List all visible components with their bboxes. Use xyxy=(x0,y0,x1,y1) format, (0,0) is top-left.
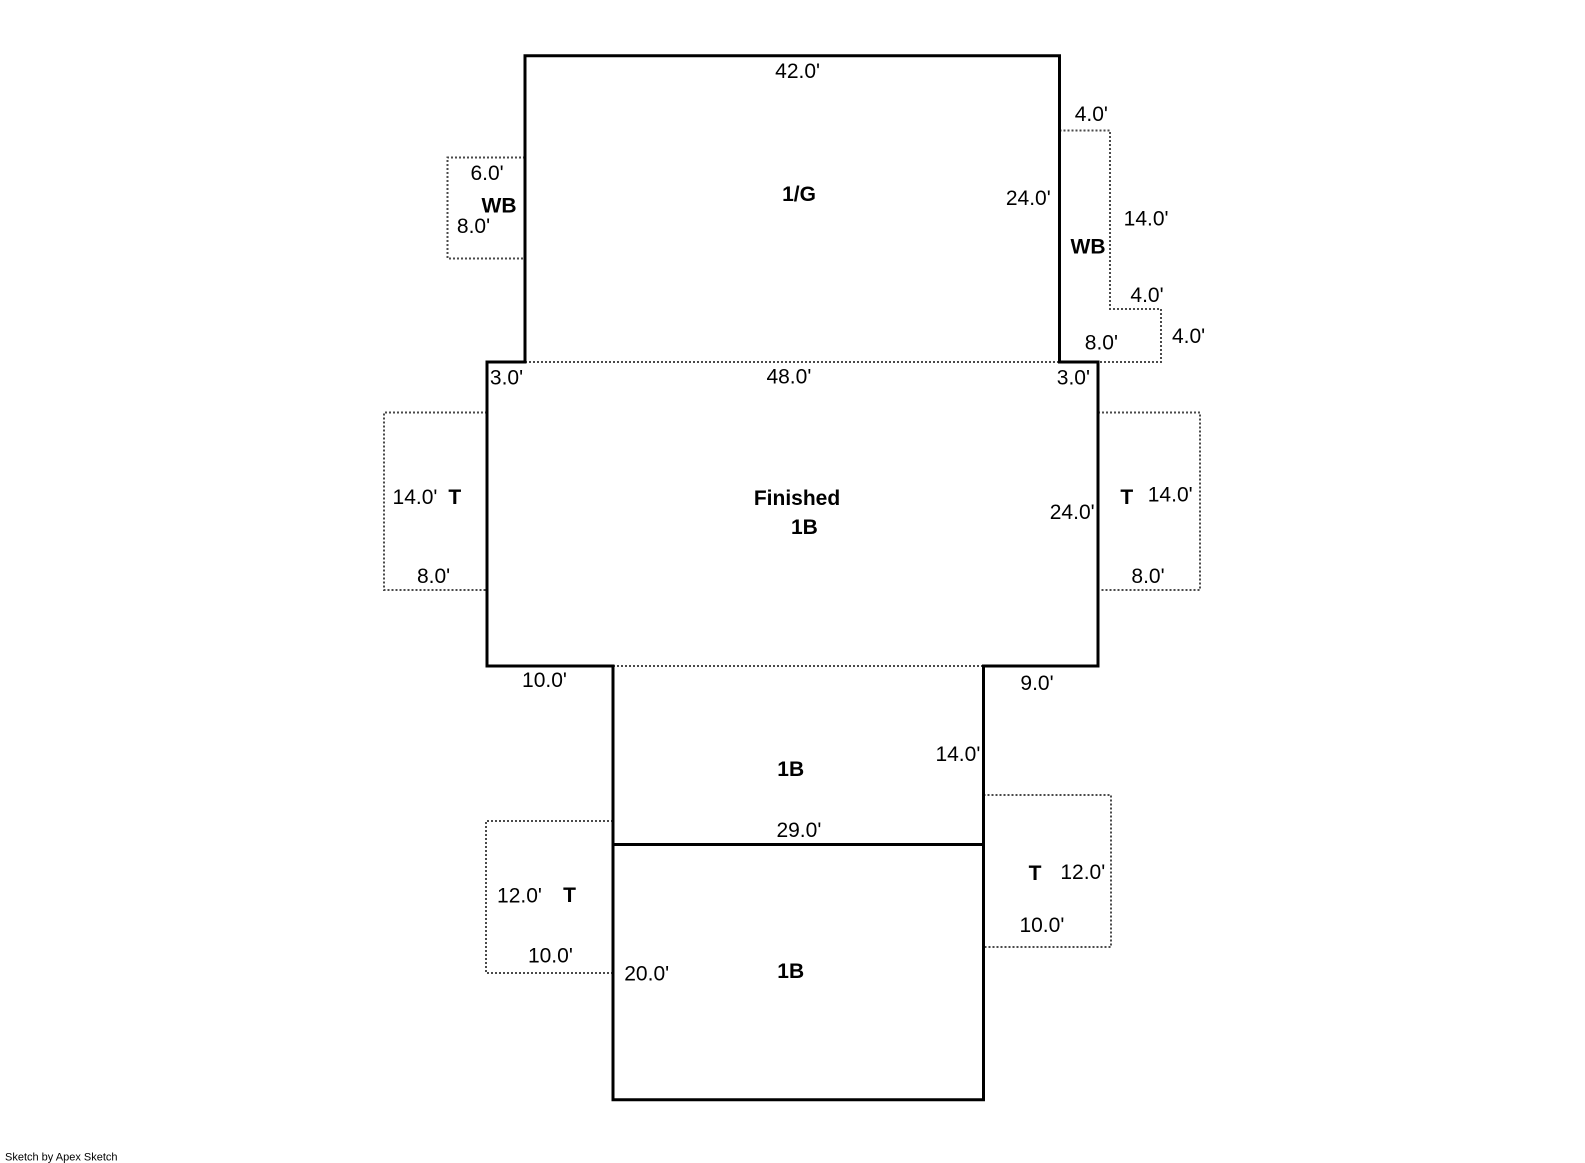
svg-text:14.0': 14.0' xyxy=(393,486,438,509)
svg-text:WB: WB xyxy=(1071,236,1106,259)
svg-text:T: T xyxy=(448,486,461,509)
svg-text:12.0': 12.0' xyxy=(497,885,542,908)
svg-text:12.0': 12.0' xyxy=(1060,861,1105,884)
svg-text:10.0': 10.0' xyxy=(528,945,573,968)
svg-text:4.0': 4.0' xyxy=(1172,325,1205,348)
svg-text:T: T xyxy=(1029,862,1042,885)
svg-text:20.0': 20.0' xyxy=(624,963,669,986)
svg-text:14.0': 14.0' xyxy=(1148,484,1193,507)
svg-text:29.0': 29.0' xyxy=(776,819,821,842)
svg-text:4.0': 4.0' xyxy=(1075,103,1108,126)
svg-text:8.0': 8.0' xyxy=(1131,565,1164,588)
svg-text:48.0': 48.0' xyxy=(766,366,811,389)
svg-text:14.0': 14.0' xyxy=(935,743,980,766)
svg-text:T: T xyxy=(563,884,576,907)
svg-text:Sketch by Apex Sketch: Sketch by Apex Sketch xyxy=(5,1152,118,1163)
svg-text:3.0': 3.0' xyxy=(1057,367,1090,390)
svg-text:1B: 1B xyxy=(777,758,804,781)
svg-text:1/G: 1/G xyxy=(782,183,816,206)
svg-text:1B: 1B xyxy=(777,960,804,983)
svg-text:1B: 1B xyxy=(791,516,818,539)
svg-text:8.0': 8.0' xyxy=(417,565,450,588)
svg-text:8.0': 8.0' xyxy=(457,215,490,238)
svg-text:T: T xyxy=(1120,486,1133,509)
svg-text:Finished: Finished xyxy=(754,487,840,510)
svg-text:9.0': 9.0' xyxy=(1020,672,1053,695)
svg-text:14.0': 14.0' xyxy=(1124,208,1169,231)
svg-text:42.0': 42.0' xyxy=(775,60,820,83)
svg-text:24.0': 24.0' xyxy=(1006,187,1051,210)
svg-text:10.0': 10.0' xyxy=(1019,914,1064,937)
svg-text:4.0': 4.0' xyxy=(1130,284,1163,307)
svg-text:24.0': 24.0' xyxy=(1050,501,1095,524)
svg-text:10.0': 10.0' xyxy=(522,669,567,692)
svg-text:3.0': 3.0' xyxy=(490,367,523,390)
svg-text:8.0': 8.0' xyxy=(1085,332,1118,355)
svg-text:6.0': 6.0' xyxy=(470,162,503,185)
